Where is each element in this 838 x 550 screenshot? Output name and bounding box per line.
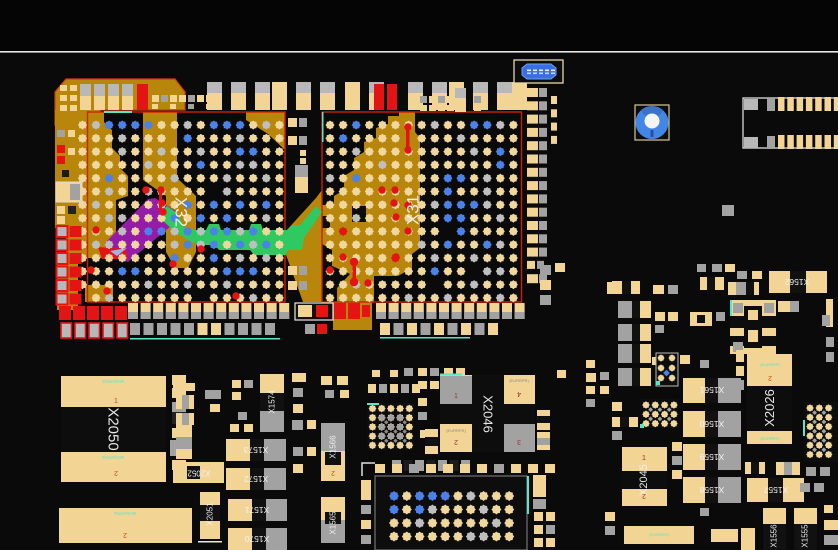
- svg-text:X2052: X2052: [187, 469, 211, 478]
- svg-text:X1555: X1555: [801, 524, 810, 548]
- svg-text:4: 4: [517, 390, 521, 397]
- svg-text:X2045: X2045: [638, 464, 650, 496]
- svg-text:X1570: X1570: [244, 534, 269, 544]
- svg-text:X1574: X1574: [268, 390, 277, 414]
- svg-text:(EURRPR): (EURRPR): [446, 428, 466, 433]
- svg-text:3: 3: [517, 438, 521, 445]
- svg-text:1: 1: [642, 455, 646, 462]
- svg-text:ThickFilmR: ThickFilmR: [102, 379, 125, 384]
- svg-text:ThickFilmR: ThickFilmR: [102, 455, 125, 460]
- svg-text:X1571: X1571: [244, 505, 269, 515]
- svg-text:2: 2: [768, 374, 772, 381]
- svg-text:(EURRPR): (EURRPR): [760, 436, 780, 441]
- svg-text:(EURRPR): (EURRPR): [649, 532, 669, 537]
- svg-text:X1565: X1565: [329, 511, 338, 535]
- svg-text:X1558: X1558: [699, 485, 724, 495]
- svg-text:X1566: X1566: [329, 435, 338, 459]
- svg-text:X32: X32: [172, 197, 191, 227]
- svg-text:X2050: X2050: [105, 407, 122, 450]
- svg-text:X1573: X1573: [243, 445, 268, 455]
- svg-text:ThickFilmR: ThickFilmR: [114, 511, 137, 516]
- svg-text:X1560: X1560: [699, 419, 724, 429]
- svg-text:X1572: X1572: [243, 474, 268, 484]
- svg-text:X31: X31: [404, 195, 423, 225]
- svg-text:X1556: X1556: [770, 524, 779, 548]
- svg-text:X1562: X1562: [784, 277, 809, 287]
- svg-text:X2051: X2051: [206, 502, 215, 526]
- svg-text:X1557: X1557: [763, 485, 788, 495]
- svg-text:X2026: X2026: [762, 389, 777, 427]
- svg-text:2: 2: [114, 469, 118, 476]
- svg-text:2: 2: [331, 469, 335, 476]
- svg-text:(EURRPR): (EURRPR): [760, 362, 780, 367]
- svg-text:(EURRPR): (EURRPR): [509, 378, 529, 383]
- svg-text:1: 1: [454, 393, 458, 400]
- svg-text:X2046: X2046: [481, 395, 496, 433]
- svg-text:X1559: X1559: [699, 452, 724, 462]
- svg-text:2: 2: [454, 438, 458, 445]
- svg-text:2: 2: [123, 531, 127, 538]
- svg-text:2: 2: [642, 492, 646, 499]
- svg-text:X1561: X1561: [699, 385, 724, 395]
- svg-text:1: 1: [114, 398, 118, 405]
